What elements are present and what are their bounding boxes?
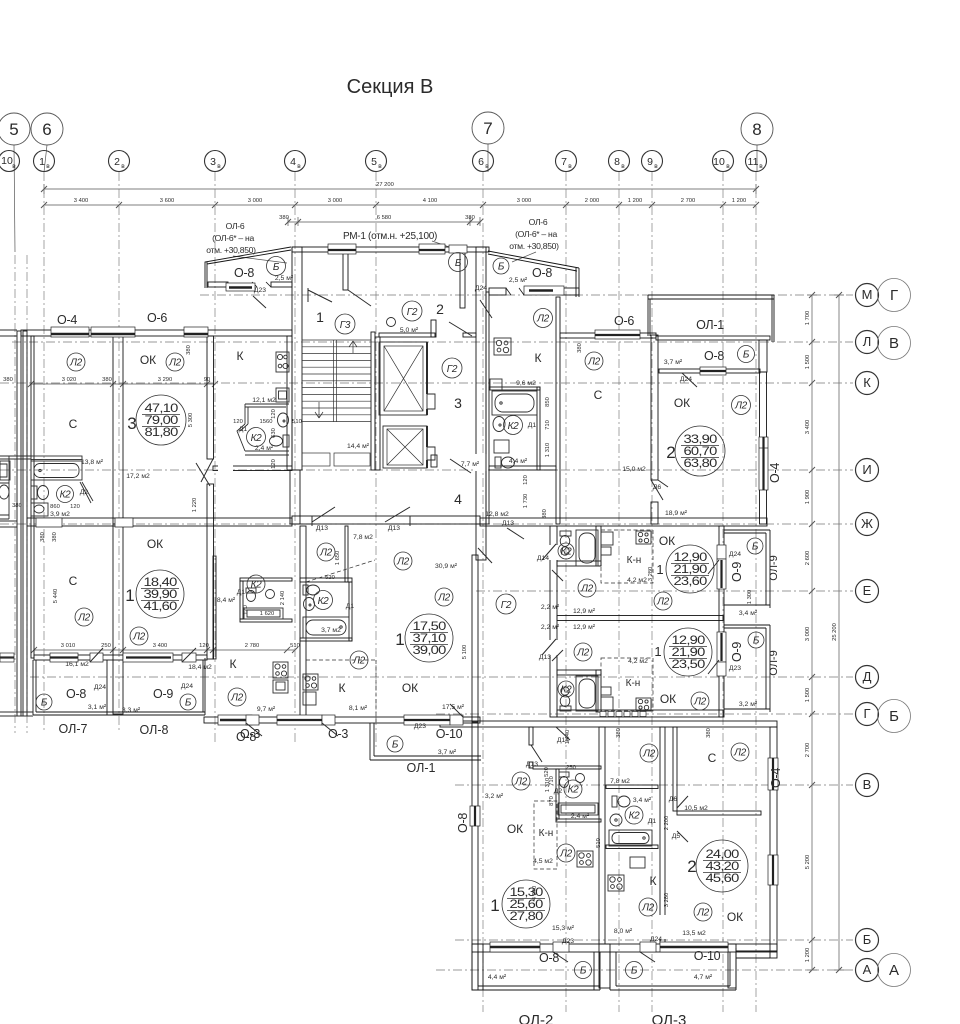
svg-text:10: 10 (1, 155, 13, 167)
svg-text:Л2: Л2 (559, 849, 573, 860)
svg-text:11: 11 (748, 156, 759, 168)
svg-text:Д1: Д1 (239, 426, 248, 433)
svg-text:в: в (297, 163, 301, 170)
svg-text:15,3 м²: 15,3 м² (552, 925, 575, 932)
svg-text:2: 2 (687, 857, 696, 876)
svg-text:39,90: 39,90 (144, 589, 177, 601)
svg-text:3,1 м²: 3,1 м² (88, 704, 107, 711)
svg-text:16,1 м2: 16,1 м2 (65, 661, 89, 668)
svg-text:6 580: 6 580 (377, 215, 392, 221)
svg-text:1 730: 1 730 (523, 494, 529, 509)
svg-text:1: 1 (395, 630, 404, 649)
svg-text:А: А (889, 962, 899, 979)
svg-text:ОК: ОК (147, 537, 163, 551)
svg-text:Л2: Л2 (77, 613, 91, 624)
svg-text:О-8: О-8 (66, 687, 86, 701)
svg-text:1 200: 1 200 (628, 198, 643, 204)
svg-text:О-8: О-8 (532, 266, 552, 280)
svg-text:К: К (650, 874, 657, 888)
svg-text:в: в (654, 163, 658, 170)
svg-text:3 280: 3 280 (664, 893, 670, 908)
svg-text:Д13: Д13 (388, 525, 400, 532)
svg-text:1 310: 1 310 (545, 778, 551, 793)
svg-text:Д13: Д13 (316, 525, 328, 532)
svg-text:С: С (594, 388, 603, 402)
svg-text:ОЛ-6: ОЛ-6 (529, 217, 548, 227)
svg-text:Л2: Л2 (230, 693, 244, 704)
svg-text:850: 850 (545, 397, 551, 407)
svg-text:3: 3 (210, 156, 216, 168)
svg-text:1560: 1560 (260, 419, 273, 425)
svg-text:Д24: Д24 (680, 376, 692, 383)
svg-text:Л2: Л2 (693, 697, 707, 708)
svg-text:в: в (12, 163, 16, 170)
svg-text:Г2: Г2 (501, 600, 512, 611)
svg-text:Д6: Д6 (653, 484, 662, 491)
svg-text:К2: К2 (568, 785, 580, 796)
svg-text:510: 510 (292, 419, 302, 425)
svg-text:ОК: ОК (659, 534, 675, 548)
svg-text:Б: Б (392, 740, 399, 751)
svg-text:3,4 м²: 3,4 м² (739, 610, 758, 617)
svg-text:2: 2 (436, 301, 444, 317)
svg-text:63,80: 63,80 (684, 458, 717, 470)
svg-text:5: 5 (371, 156, 377, 168)
svg-text:4,7 м²: 4,7 м² (694, 974, 713, 981)
svg-text:1: 1 (316, 309, 324, 325)
svg-text:2 700: 2 700 (681, 198, 696, 204)
svg-text:ОЛ-7: ОЛ-7 (59, 722, 88, 736)
svg-text:380: 380 (40, 532, 46, 542)
svg-text:3,3 м²: 3,3 м² (122, 707, 141, 714)
svg-text:23,50: 23,50 (672, 659, 705, 671)
svg-text:4,4 м²: 4,4 м² (488, 974, 507, 981)
svg-text:С: С (708, 751, 717, 765)
svg-text:27,80: 27,80 (510, 911, 543, 923)
svg-text:1 500: 1 500 (805, 355, 811, 370)
svg-text:12,9 м²: 12,9 м² (573, 624, 596, 631)
svg-text:1 300: 1 300 (747, 590, 753, 605)
svg-text:К2: К2 (318, 596, 330, 607)
svg-text:Секция В: Секция В (347, 76, 434, 98)
svg-text:2,4 м²: 2,4 м² (571, 813, 590, 820)
svg-text:120: 120 (199, 643, 209, 649)
svg-text:в: в (759, 163, 763, 170)
svg-text:13,5 м2: 13,5 м2 (682, 930, 706, 937)
svg-text:Л2: Л2 (536, 314, 550, 325)
svg-text:Д1: Д1 (346, 603, 355, 610)
svg-text:3 400: 3 400 (153, 643, 168, 649)
svg-text:3 400: 3 400 (74, 198, 89, 204)
svg-text:О-3: О-3 (328, 727, 348, 741)
svg-text:О-4: О-4 (769, 768, 783, 788)
svg-text:ОЛ-2: ОЛ-2 (519, 1012, 554, 1024)
svg-text:К2: К2 (561, 685, 573, 696)
svg-text:120: 120 (271, 409, 277, 419)
svg-text:Д24: Д24 (729, 551, 741, 558)
svg-text:Д24: Д24 (475, 285, 487, 292)
svg-text:81,80: 81,80 (145, 427, 178, 439)
svg-text:4: 4 (290, 156, 296, 168)
svg-text:3,7 м²: 3,7 м² (438, 749, 457, 756)
svg-text:1 620: 1 620 (260, 611, 275, 617)
svg-text:2 780: 2 780 (245, 643, 260, 649)
svg-text:3 020: 3 020 (62, 377, 77, 383)
svg-text:45,60: 45,60 (706, 873, 739, 885)
svg-text:О-6: О-6 (614, 314, 634, 328)
svg-text:А: А (863, 962, 872, 977)
svg-text:О-10: О-10 (694, 949, 721, 963)
svg-text:250: 250 (101, 643, 111, 649)
svg-text:в: в (217, 163, 221, 170)
svg-text:в: в (485, 163, 489, 170)
svg-text:7: 7 (561, 156, 567, 168)
svg-text:380: 380 (616, 728, 622, 738)
svg-text:К2: К2 (508, 421, 520, 432)
svg-text:870: 870 (549, 796, 555, 806)
svg-text:Д13: Д13 (502, 520, 514, 527)
svg-text:8,4 м²: 8,4 м² (217, 597, 236, 604)
svg-text:1 650: 1 650 (335, 551, 341, 566)
svg-text:2,2 м²: 2,2 м² (541, 624, 560, 631)
svg-text:3,2 м²: 3,2 м² (485, 793, 504, 800)
svg-text:2,4 м²: 2,4 м² (255, 445, 274, 452)
svg-text:41,60: 41,60 (144, 601, 177, 613)
svg-text:К: К (230, 657, 237, 671)
svg-text:30,9 м²: 30,9 м² (435, 563, 458, 570)
svg-text:отм. +30,850): отм. +30,850) (509, 241, 559, 251)
svg-text:О-9: О-9 (730, 642, 744, 662)
svg-text:380: 380 (186, 345, 192, 355)
svg-text:Д: Д (863, 669, 872, 684)
svg-text:8,0 м²: 8,0 м² (614, 928, 633, 935)
svg-text:2,2 м²: 2,2 м² (541, 604, 560, 611)
svg-text:Е: Е (863, 583, 872, 598)
svg-text:РМ-1 (отм.н. +25,100): РМ-1 (отм.н. +25,100) (343, 231, 437, 242)
svg-text:1 500: 1 500 (805, 688, 811, 703)
svg-text:(ОЛ-6* – на: (ОЛ-6* – на (212, 233, 254, 243)
svg-text:Д23: Д23 (254, 287, 266, 294)
svg-text:380: 380 (465, 215, 475, 221)
svg-text:120: 120 (70, 504, 80, 510)
svg-text:23,60: 23,60 (674, 576, 707, 588)
svg-text:Л2: Л2 (641, 903, 655, 914)
svg-text:9,6 м2: 9,6 м2 (516, 380, 536, 387)
svg-text:Б: Б (41, 698, 48, 709)
svg-text:1 700: 1 700 (805, 311, 811, 326)
svg-text:520: 520 (544, 767, 550, 777)
svg-text:3: 3 (454, 395, 462, 411)
svg-text:О-6: О-6 (147, 311, 167, 325)
svg-text:6: 6 (478, 156, 484, 168)
svg-text:в: в (121, 163, 125, 170)
svg-text:4: 4 (454, 491, 462, 507)
svg-text:С: С (69, 417, 78, 431)
svg-text:6: 6 (42, 120, 51, 139)
svg-text:2 700: 2 700 (805, 743, 811, 758)
svg-text:860: 860 (50, 504, 60, 510)
svg-text:ОЛ-1: ОЛ-1 (696, 318, 724, 332)
svg-text:в: в (726, 163, 730, 170)
svg-text:Г2: Г2 (407, 307, 418, 318)
svg-text:9: 9 (647, 156, 653, 168)
svg-text:К2: К2 (60, 490, 72, 501)
svg-text:120: 120 (233, 419, 243, 425)
svg-text:К-н: К-н (627, 555, 642, 566)
svg-text:21,90: 21,90 (674, 564, 707, 576)
svg-text:В: В (863, 777, 872, 792)
svg-text:17,5 м²: 17,5 м² (442, 704, 465, 711)
svg-text:Л2: Л2 (734, 401, 748, 412)
svg-text:Б: Б (863, 932, 872, 947)
svg-text:17,2 м2: 17,2 м2 (126, 473, 150, 480)
svg-text:2 600: 2 600 (805, 551, 811, 566)
svg-text:12,90: 12,90 (672, 635, 705, 647)
svg-text:24,00: 24,00 (706, 849, 739, 861)
svg-text:79,00: 79,00 (145, 415, 178, 427)
svg-text:ОЛ-6: ОЛ-6 (226, 221, 245, 231)
svg-text:Д14: Д14 (537, 555, 549, 562)
svg-text:3,7 м2: 3,7 м2 (321, 627, 341, 634)
svg-text:7,8 м2: 7,8 м2 (610, 778, 630, 785)
svg-text:Л2: Л2 (696, 908, 710, 919)
svg-text:Г3: Г3 (340, 320, 351, 331)
svg-text:3 000: 3 000 (248, 198, 263, 204)
svg-text:12,1 м2: 12,1 м2 (252, 397, 276, 404)
svg-text:60,70: 60,70 (684, 446, 717, 458)
svg-text:Д24: Д24 (181, 683, 193, 690)
svg-text:ОК: ОК (660, 692, 676, 706)
svg-text:14,4 м²: 14,4 м² (347, 443, 370, 450)
svg-text:ОЛ-3: ОЛ-3 (652, 1012, 687, 1024)
svg-text:ОЛ-8: ОЛ-8 (140, 723, 169, 737)
svg-text:Л2: Л2 (319, 548, 333, 559)
svg-text:О-9: О-9 (730, 562, 744, 582)
svg-text:120: 120 (243, 605, 249, 615)
svg-text:2: 2 (114, 156, 120, 168)
svg-text:4 240: 4 240 (532, 886, 538, 901)
svg-text:3,4 м²: 3,4 м² (633, 797, 652, 804)
svg-text:120: 120 (271, 459, 277, 469)
svg-text:Ж: Ж (861, 516, 873, 531)
svg-text:120: 120 (523, 475, 529, 485)
svg-text:К: К (237, 349, 244, 363)
svg-text:в: в (378, 163, 382, 170)
svg-text:ОК: ОК (674, 396, 690, 410)
svg-text:27 200: 27 200 (376, 182, 394, 188)
svg-text:3 290: 3 290 (158, 377, 173, 383)
svg-text:Б: Б (185, 698, 192, 709)
svg-text:2: 2 (666, 443, 675, 462)
svg-text:1 200: 1 200 (732, 198, 747, 204)
svg-text:37,10: 37,10 (413, 633, 446, 645)
svg-text:17,50: 17,50 (413, 621, 446, 633)
svg-text:8: 8 (752, 120, 761, 139)
svg-text:380: 380 (279, 215, 289, 221)
svg-text:О-8: О-8 (236, 730, 256, 744)
svg-text:ОК: ОК (140, 353, 156, 367)
svg-text:630: 630 (271, 428, 277, 438)
svg-text:1: 1 (39, 156, 45, 168)
svg-text:Л2: Л2 (733, 748, 747, 759)
svg-text:К: К (339, 681, 346, 695)
svg-text:1 310: 1 310 (545, 443, 551, 458)
svg-text:Б: Б (743, 350, 750, 361)
svg-text:2,5 м²: 2,5 м² (509, 277, 528, 284)
svg-text:1 440: 1 440 (565, 730, 571, 745)
svg-text:Г: Г (863, 706, 870, 721)
svg-text:Л2: Л2 (168, 358, 182, 369)
svg-text:Д1: Д1 (528, 422, 537, 429)
svg-text:1 200: 1 200 (805, 948, 811, 963)
svg-text:3,7 м²: 3,7 м² (664, 359, 683, 366)
svg-text:(ОЛ-6* – на: (ОЛ-6* – на (515, 229, 557, 239)
svg-text:Л2: Л2 (587, 357, 601, 368)
svg-text:5 300: 5 300 (188, 413, 194, 428)
svg-text:Д1: Д1 (237, 589, 246, 596)
svg-text:Б: Б (753, 636, 760, 647)
svg-text:К2: К2 (629, 811, 641, 822)
svg-text:510: 510 (290, 643, 300, 649)
svg-text:1: 1 (654, 644, 661, 659)
svg-text:12,9 м²: 12,9 м² (573, 608, 596, 615)
svg-text:21,90: 21,90 (672, 647, 705, 659)
svg-text:5,0 м²: 5,0 м² (400, 327, 419, 334)
svg-text:Д6: Д6 (669, 796, 678, 803)
svg-text:О-10: О-10 (436, 727, 463, 741)
svg-text:13,8 м²: 13,8 м² (81, 459, 104, 466)
svg-text:15,0 м2: 15,0 м2 (622, 466, 646, 473)
svg-text:Г2: Г2 (447, 364, 458, 375)
svg-text:380: 380 (52, 532, 58, 542)
svg-text:ОЛ-9: ОЛ-9 (768, 650, 780, 675)
svg-text:Д24: Д24 (650, 936, 662, 943)
svg-text:33,90: 33,90 (684, 434, 717, 446)
svg-text:Л2: Л2 (352, 656, 366, 667)
svg-text:ОК: ОК (402, 681, 418, 695)
svg-text:О-8: О-8 (234, 266, 254, 280)
svg-text:Д13: Д13 (526, 761, 538, 768)
svg-text:О-9: О-9 (153, 687, 173, 701)
svg-text:3 000: 3 000 (328, 198, 343, 204)
svg-text:К2: К2 (251, 580, 263, 591)
svg-text:О-8: О-8 (539, 951, 559, 965)
svg-text:3,2 м²: 3,2 м² (739, 701, 758, 708)
svg-text:3 280: 3 280 (648, 567, 654, 582)
svg-text:С: С (69, 574, 78, 588)
svg-text:Д2: Д2 (554, 788, 563, 795)
svg-text:3 400: 3 400 (805, 420, 811, 435)
svg-text:Л2: Л2 (69, 358, 83, 369)
svg-text:К-н: К-н (539, 828, 554, 839)
svg-text:5: 5 (9, 120, 18, 139)
svg-text:4,2 м2: 4,2 м2 (627, 577, 647, 584)
svg-text:Л: Л (863, 334, 872, 349)
svg-text:Д13: Д13 (539, 654, 551, 661)
svg-text:380: 380 (577, 343, 583, 353)
svg-text:К: К (535, 351, 542, 365)
svg-text:39,00: 39,00 (413, 645, 446, 657)
svg-text:К-н: К-н (626, 678, 641, 689)
svg-text:О-8: О-8 (456, 813, 470, 833)
svg-text:В: В (889, 335, 899, 352)
svg-text:250: 250 (566, 765, 576, 771)
svg-text:7,7 м²: 7,7 м² (461, 461, 480, 468)
svg-text:Б: Б (889, 708, 899, 725)
svg-text:Б: Б (580, 966, 587, 977)
svg-text:Д1: Д1 (648, 818, 657, 825)
svg-text:4,2 м2: 4,2 м2 (628, 658, 648, 665)
svg-text:3 000: 3 000 (805, 627, 811, 642)
svg-text:Л2: Л2 (396, 557, 410, 568)
svg-text:ОК: ОК (507, 822, 523, 836)
svg-text:Б: Б (752, 542, 759, 553)
svg-text:7,8 м2: 7,8 м2 (353, 534, 373, 541)
svg-text:510: 510 (596, 838, 602, 848)
svg-text:8,1 м²: 8,1 м² (349, 705, 368, 712)
svg-text:Л2: Л2 (576, 648, 590, 659)
svg-text:3 600: 3 600 (160, 198, 175, 204)
svg-text:7: 7 (483, 119, 492, 138)
svg-text:5 200: 5 200 (805, 855, 811, 870)
svg-text:Д24: Д24 (94, 684, 106, 691)
svg-text:в: в (46, 163, 50, 170)
svg-text:1 220: 1 220 (192, 498, 198, 513)
svg-text:Б: Б (455, 258, 462, 269)
svg-text:О-8: О-8 (704, 349, 724, 363)
svg-text:47,10: 47,10 (145, 403, 178, 415)
svg-text:Л2: Л2 (132, 632, 146, 643)
svg-text:Д23: Д23 (562, 938, 574, 945)
svg-text:380: 380 (3, 377, 13, 383)
svg-text:3 010: 3 010 (61, 643, 76, 649)
svg-text:18,9 м²: 18,9 м² (665, 510, 688, 517)
svg-text:9,7 м²: 9,7 м² (257, 706, 276, 713)
svg-text:Б: Б (273, 262, 280, 273)
svg-text:12,8 м2: 12,8 м2 (485, 511, 509, 518)
svg-text:18,4 м2: 18,4 м2 (188, 664, 212, 671)
svg-text:380: 380 (102, 377, 112, 383)
svg-text:5 440: 5 440 (53, 589, 59, 604)
svg-text:Б: Б (498, 262, 505, 273)
svg-text:2 200: 2 200 (664, 816, 670, 831)
svg-text:25 200: 25 200 (832, 623, 838, 641)
svg-text:Л2: Л2 (656, 597, 670, 608)
svg-text:И: И (862, 462, 871, 477)
svg-text:3: 3 (127, 414, 136, 433)
svg-text:710: 710 (545, 420, 551, 430)
svg-text:Л2: Л2 (514, 777, 528, 788)
svg-text:Л2: Л2 (642, 749, 656, 760)
svg-text:Б: Б (631, 966, 638, 977)
svg-text:5 100: 5 100 (462, 645, 468, 660)
svg-text:К2: К2 (251, 433, 263, 444)
svg-text:380: 380 (12, 503, 22, 509)
svg-text:4,5 м2: 4,5 м2 (533, 858, 553, 865)
svg-text:1 900: 1 900 (805, 490, 811, 505)
svg-text:2 140: 2 140 (280, 591, 286, 606)
svg-text:М: М (862, 287, 873, 302)
svg-text:в: в (621, 163, 625, 170)
svg-text:К2: К2 (561, 547, 573, 558)
svg-text:Д5: Д5 (672, 833, 681, 840)
svg-text:К: К (863, 375, 871, 390)
svg-text:Д23: Д23 (729, 665, 741, 672)
svg-text:Г: Г (890, 287, 898, 304)
svg-text:1: 1 (125, 586, 134, 605)
svg-text:ОЛ-1: ОЛ-1 (407, 761, 436, 775)
svg-text:4,4 м²: 4,4 м² (509, 458, 528, 465)
